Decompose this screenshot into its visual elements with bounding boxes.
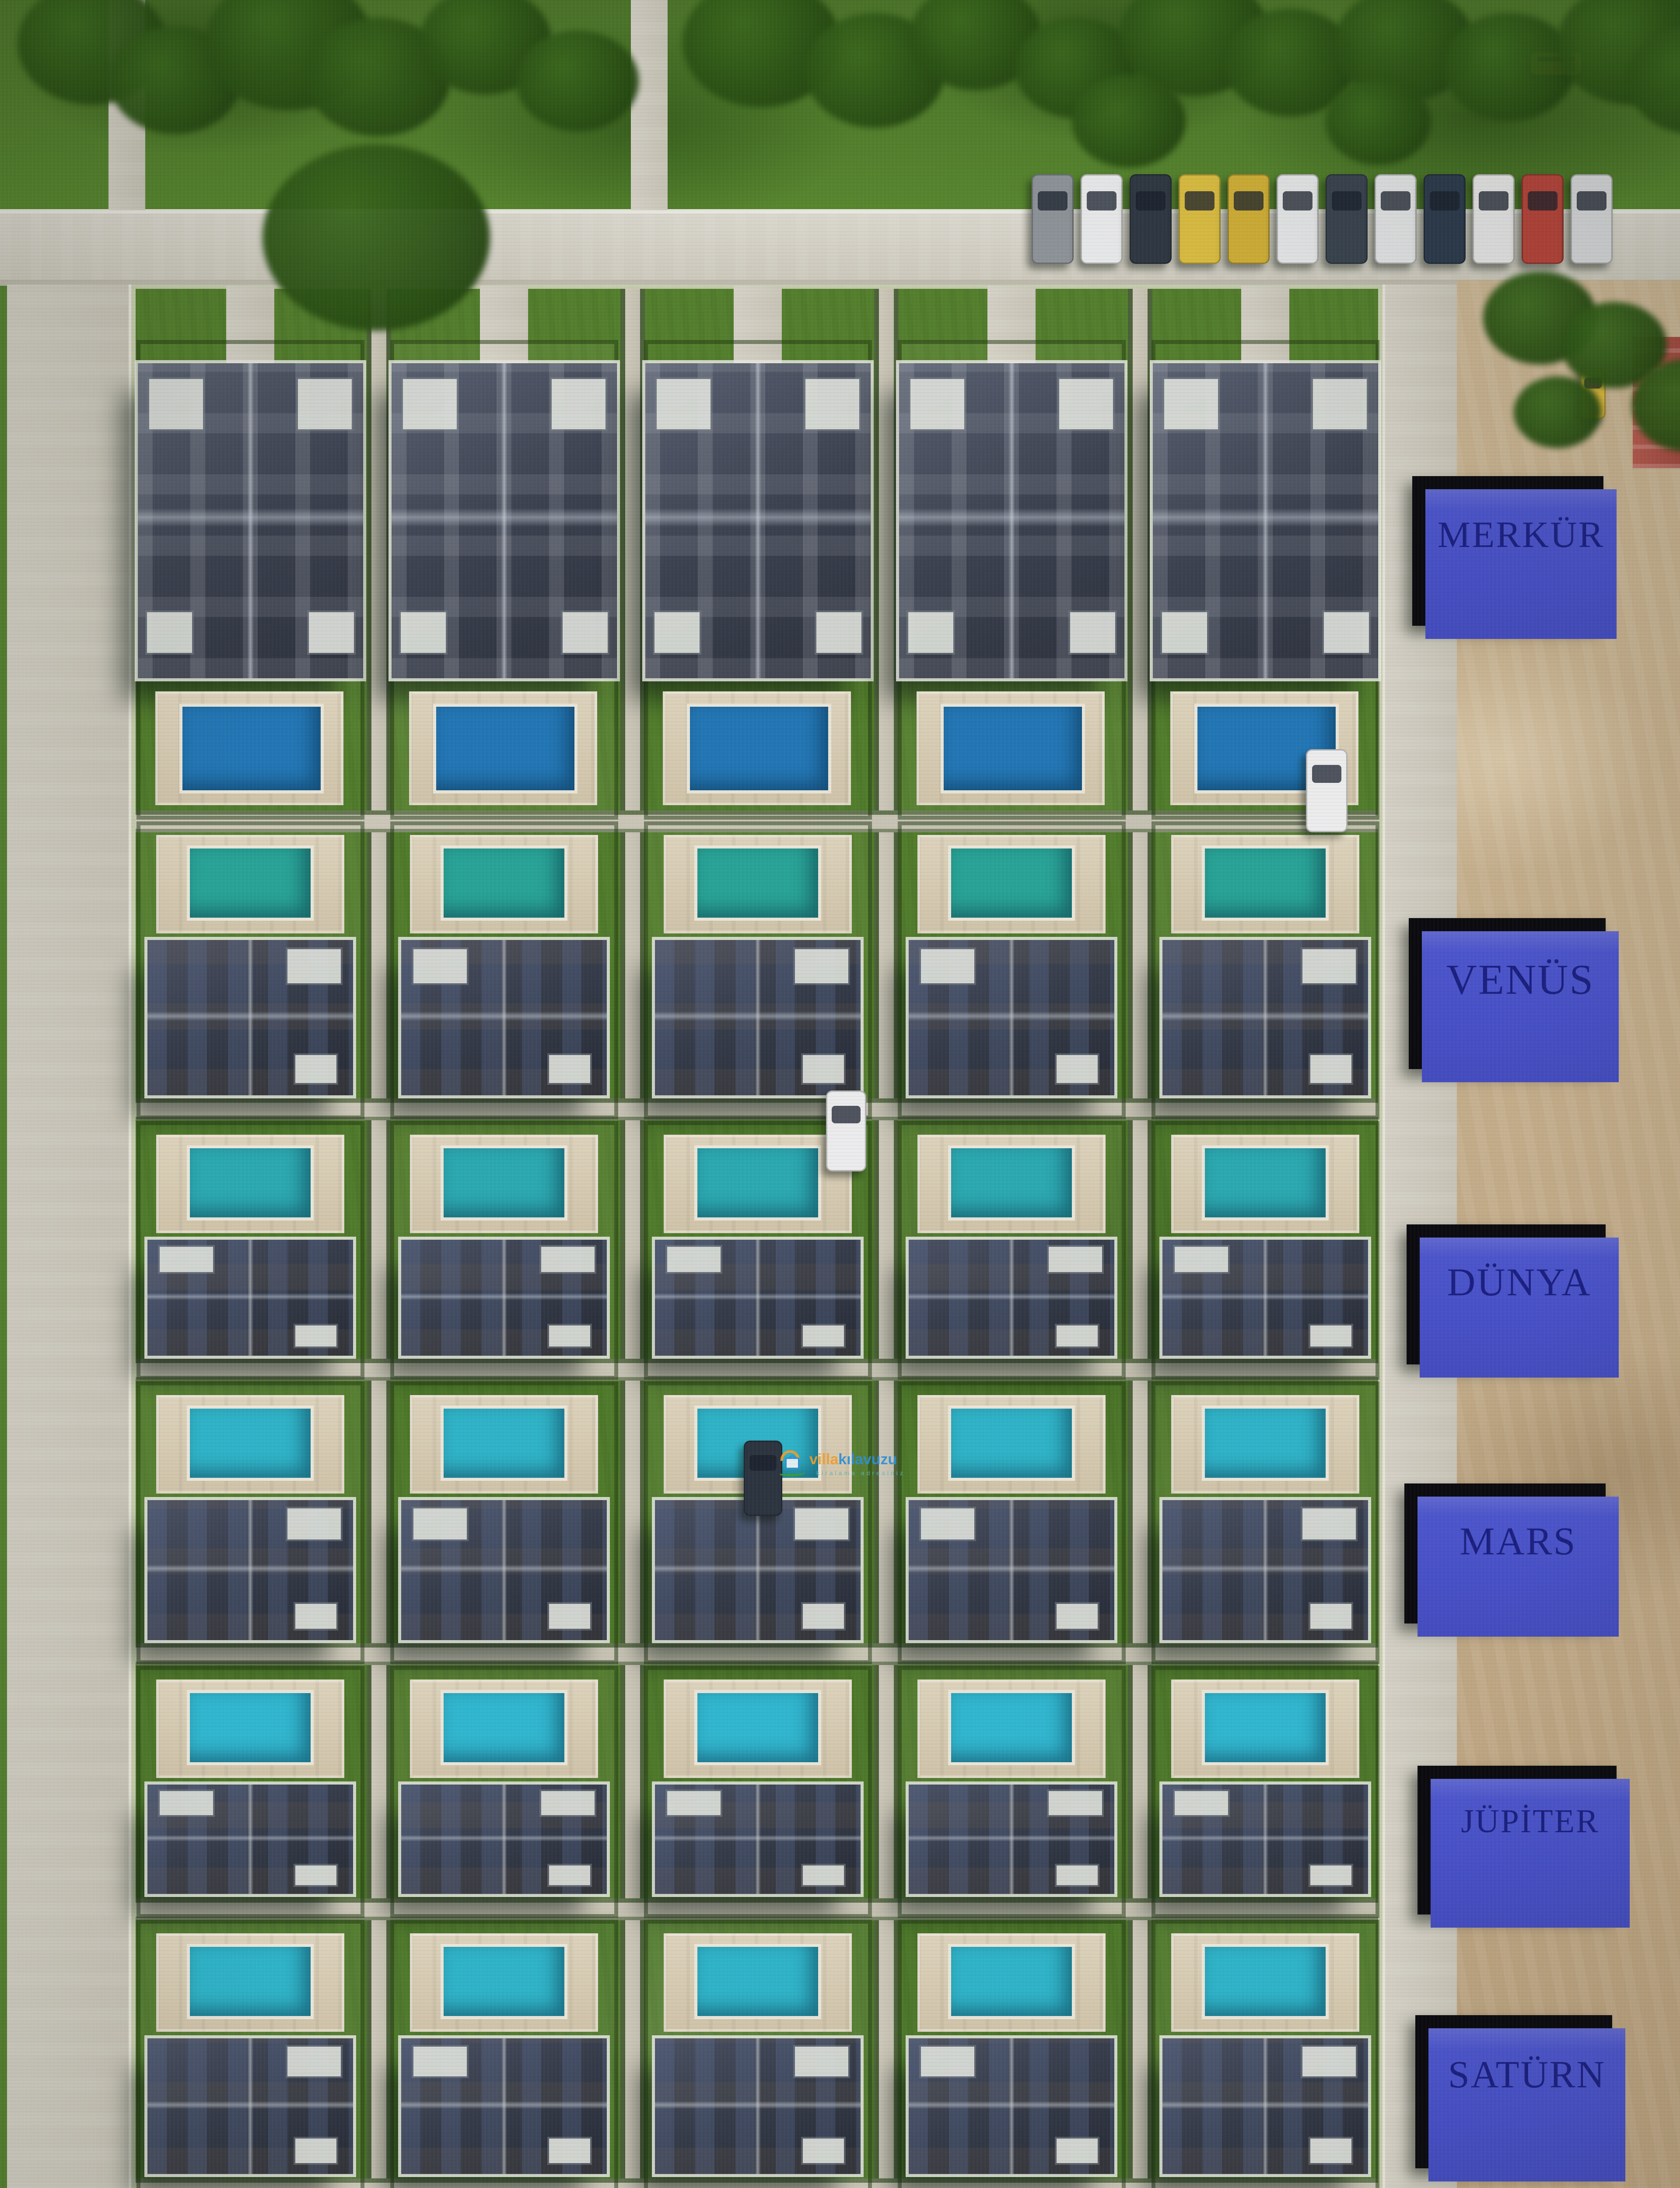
brand-part-kilavuzu: kılavuzu <box>838 1451 897 1468</box>
sign-label: JÜPİTER <box>1461 1802 1599 1841</box>
house-body-icon <box>787 1459 798 1468</box>
row-signs-layer: MERKÜRVENÜSDÜNYAMARSJÜPİTERSATÜRNURANÜSN… <box>0 0 1680 2188</box>
sign-face: MERKÜR <box>1425 489 1617 639</box>
ground-swoosh-icon <box>780 1470 805 1476</box>
row-sign-merkür: MERKÜR <box>1412 476 1603 626</box>
watermark-tagline: kiralama adresiniz <box>816 1469 905 1476</box>
row-sign-jüpi̇ter: JÜPİTER <box>1417 1766 1617 1914</box>
row-sign-satürn: SATÜRN <box>1415 2015 1612 2168</box>
sun-house-icon <box>780 1449 807 1476</box>
sign-label: DÜNYA <box>1447 1260 1592 1305</box>
row-sign-dünya: DÜNYA <box>1407 1224 1606 1364</box>
sign-label: MARS <box>1459 1519 1576 1564</box>
sign-face: MARS <box>1417 1497 1619 1637</box>
sign-label: VENÜS <box>1446 955 1594 1004</box>
sign-face: SATÜRN <box>1428 2028 1625 2181</box>
sign-face: JÜPİTER <box>1431 1779 1630 1928</box>
sign-label: SATÜRN <box>1448 2053 1606 2097</box>
sign-face: DÜNYA <box>1420 1238 1619 1378</box>
aerial-photo-villa-complex: MERKÜRVENÜSDÜNYAMARSJÜPİTERSATÜRNURANÜSN… <box>0 0 1680 2188</box>
row-sign-venüs: VENÜS <box>1409 918 1606 1069</box>
watermark: villakılavuzu kiralama adresiniz <box>780 1448 920 1488</box>
watermark-brand: villakılavuzu <box>809 1451 897 1468</box>
brand-part-villa: villa <box>809 1451 838 1468</box>
row-sign-mars: MARS <box>1404 1483 1606 1623</box>
sign-label: MERKÜR <box>1438 513 1605 556</box>
sign-face: VENÜS <box>1422 931 1619 1082</box>
